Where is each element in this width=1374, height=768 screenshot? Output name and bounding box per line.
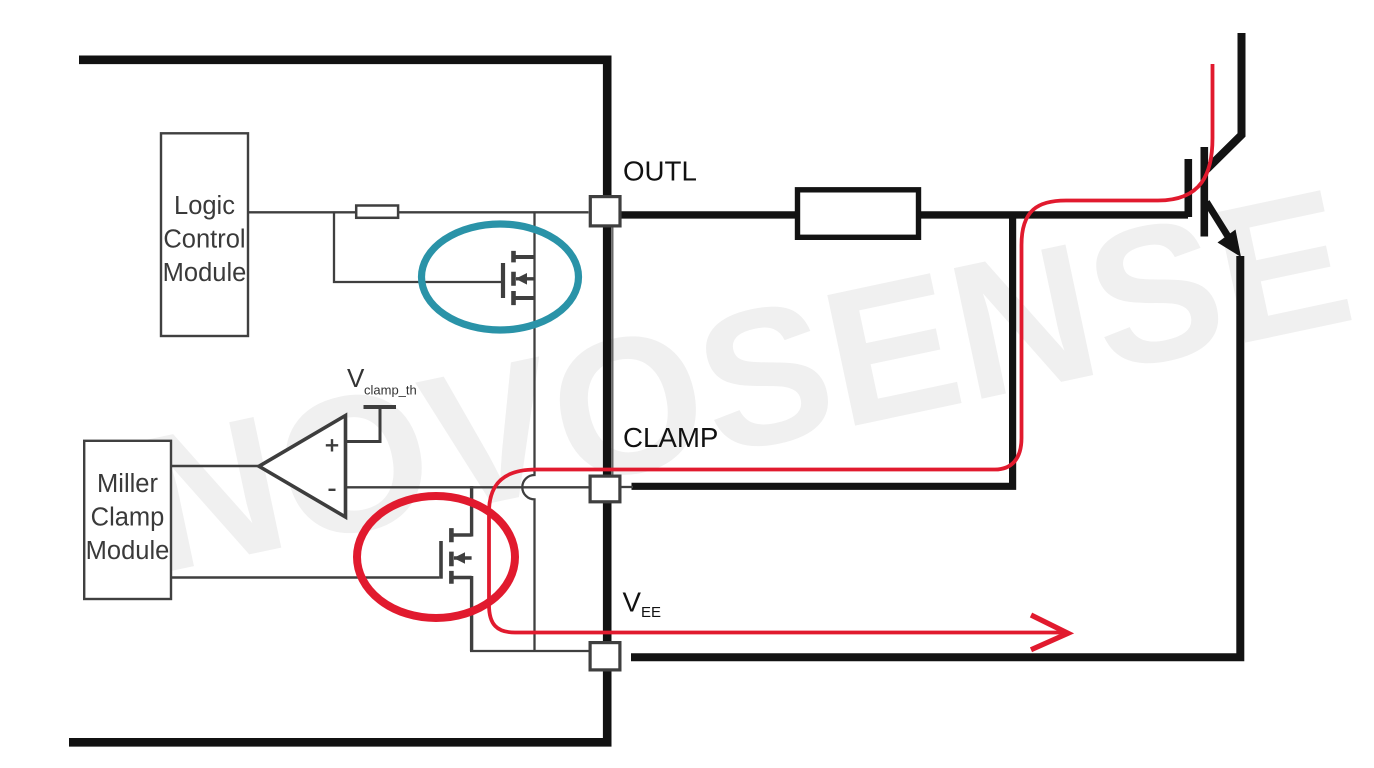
svg-text:CLAMP: CLAMP [623, 422, 718, 453]
svg-text:Module: Module [163, 259, 247, 287]
svg-text:Clamp: Clamp [91, 504, 165, 532]
svg-text:Control: Control [163, 226, 245, 254]
svg-text:clamp_th: clamp_th [364, 383, 417, 398]
svg-text:V: V [347, 363, 365, 393]
svg-text:Module: Module [86, 537, 170, 565]
svg-text:EE: EE [641, 604, 661, 621]
svg-text:Miller: Miller [97, 470, 158, 498]
svg-text:Logic: Logic [174, 192, 235, 220]
svg-text:V: V [623, 587, 642, 618]
svg-text:OUTL: OUTL [623, 156, 697, 187]
